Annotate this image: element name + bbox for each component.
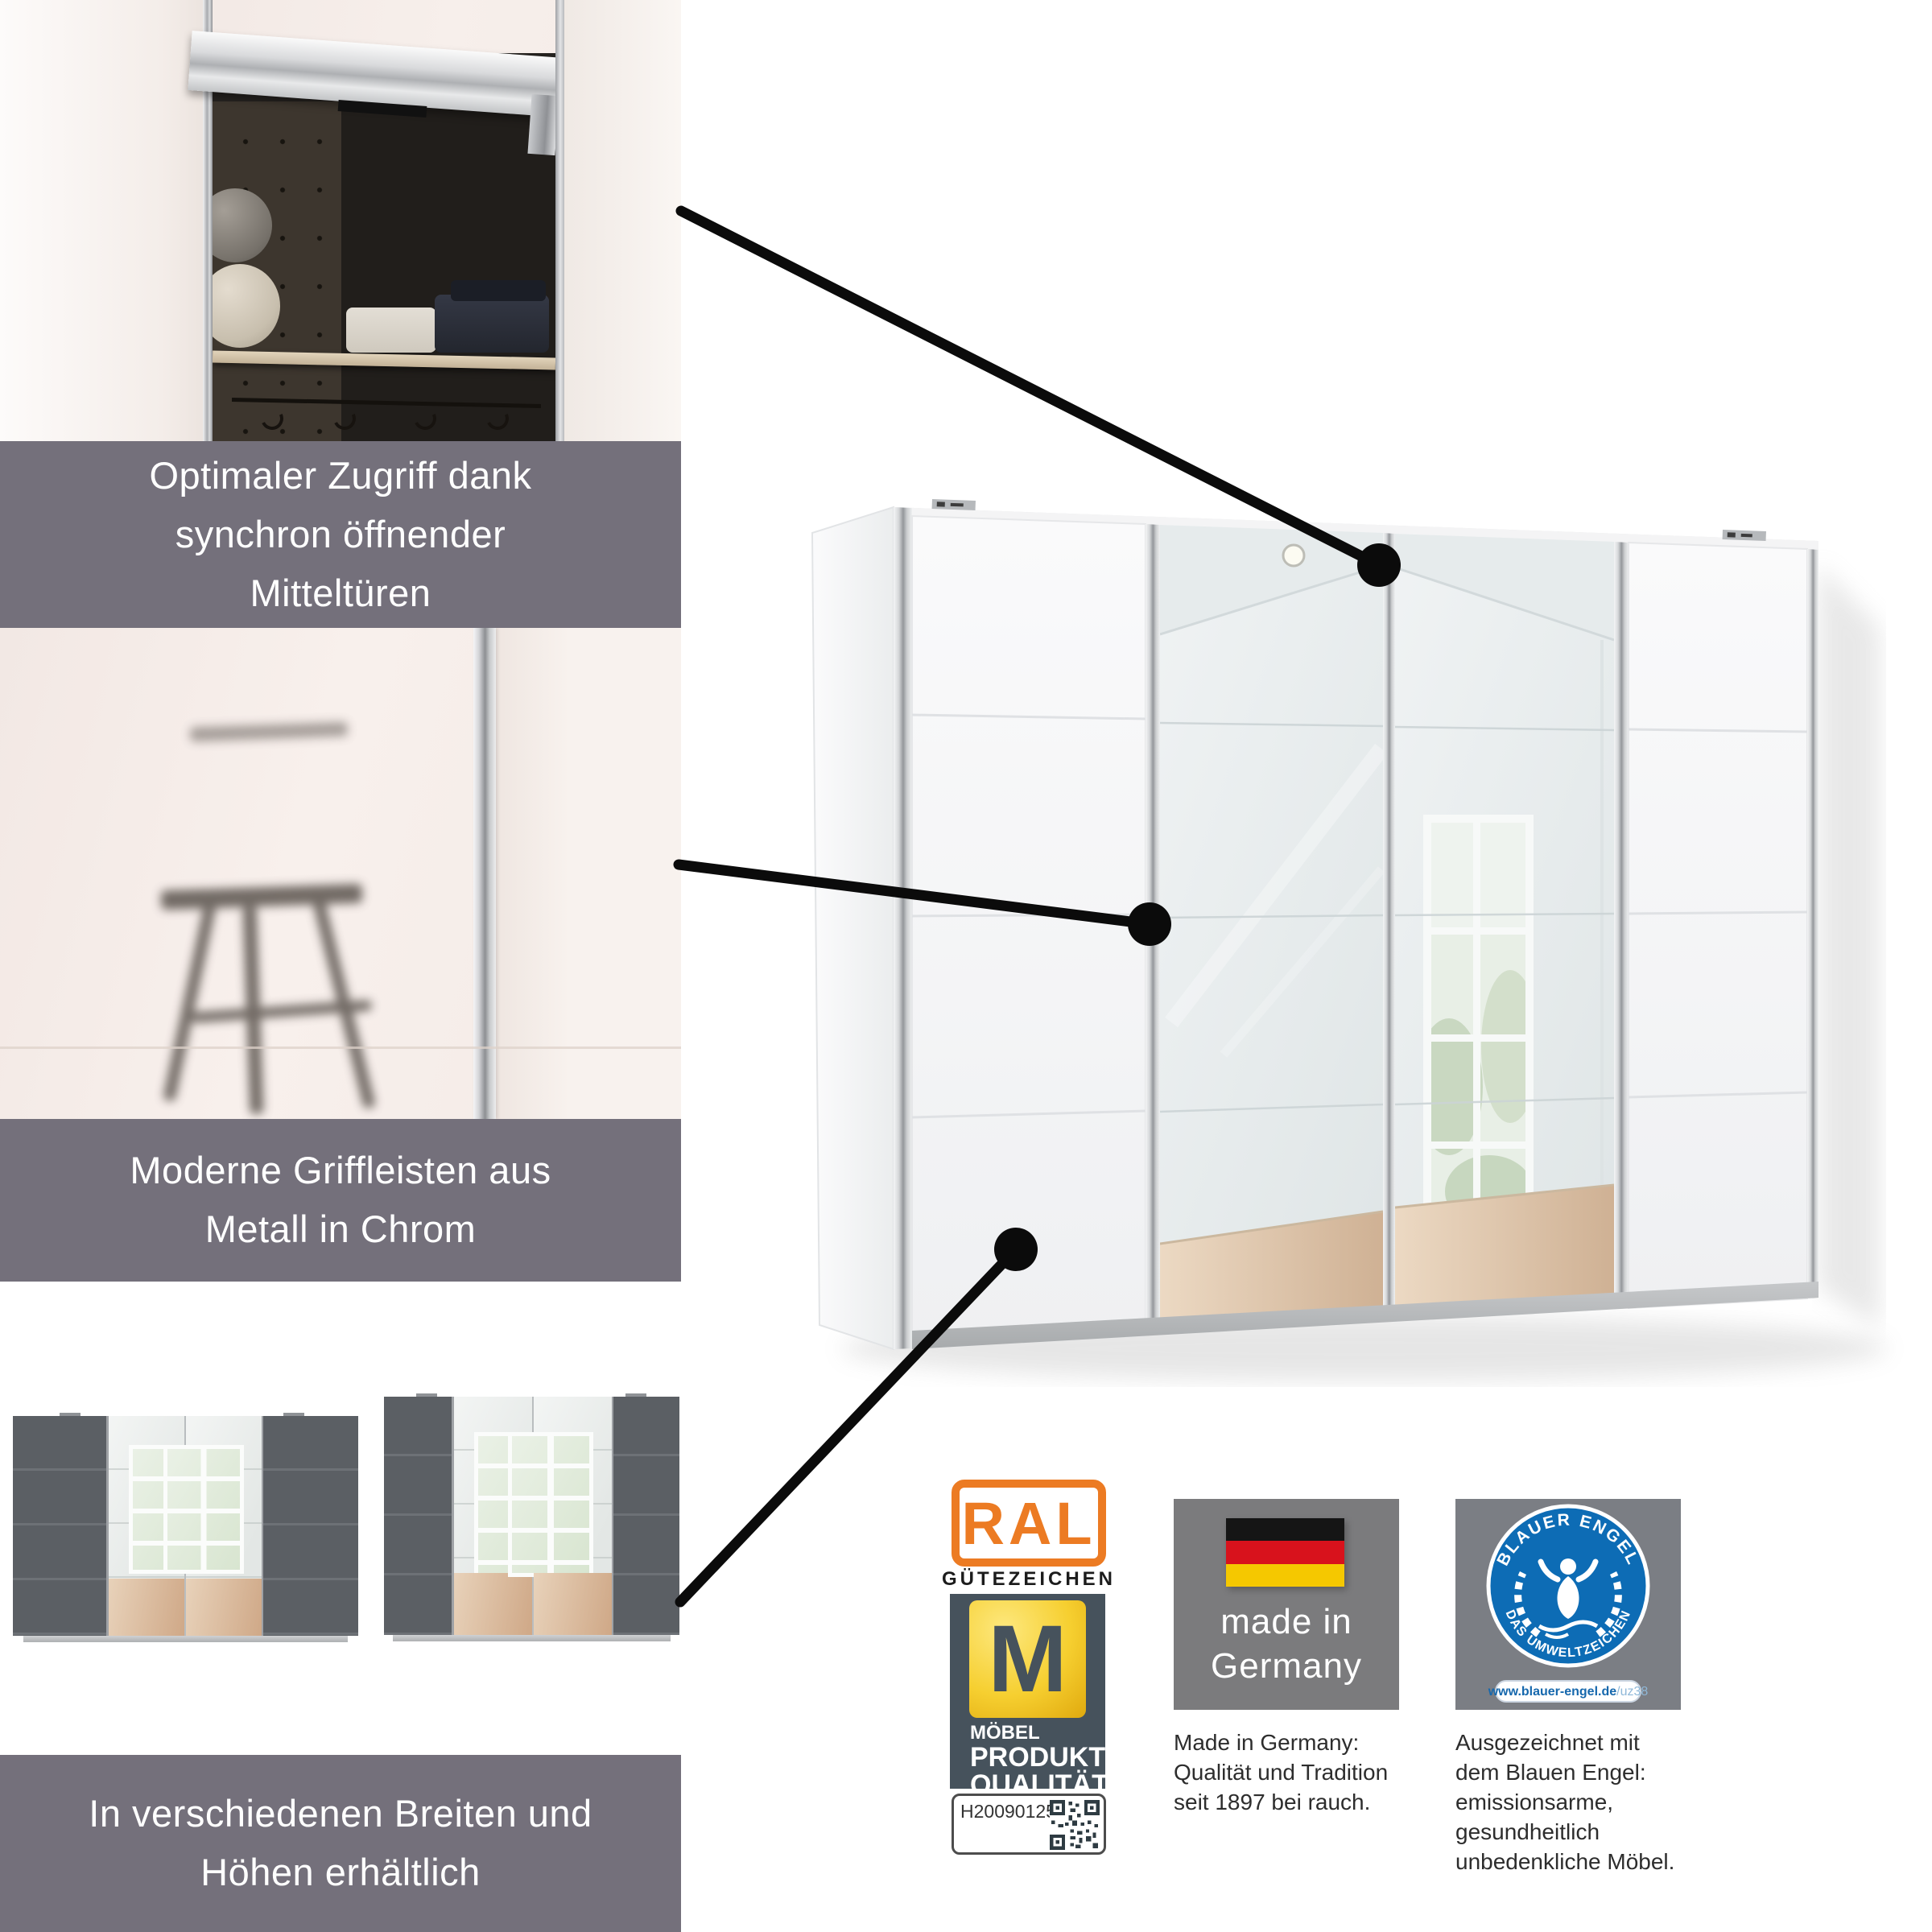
caption-line: dem Blauen Engel: bbox=[1455, 1757, 1713, 1787]
made-in-label: made in bbox=[1174, 1602, 1399, 1642]
m-gold-icon: M bbox=[969, 1600, 1086, 1718]
mirror-divider-strip bbox=[1383, 533, 1395, 1322]
callout-line-1 bbox=[681, 211, 1379, 565]
m-letter: M bbox=[988, 1604, 1067, 1714]
callout-dot-1 bbox=[1357, 543, 1401, 587]
caption-line: emissionsarme, bbox=[1455, 1787, 1713, 1817]
blauer-engel-badge: BLAUER ENGEL DAS UMWELTZEICHEN www.blaue… bbox=[1455, 1499, 1681, 1710]
callout-dot-2 bbox=[1128, 902, 1171, 946]
white-door-right bbox=[1629, 543, 1807, 1308]
made-in-germany-badge: made in Germany bbox=[1174, 1499, 1399, 1710]
moebel-label: MÖBEL bbox=[970, 1723, 1108, 1744]
caption-line: Qualität und Tradition bbox=[1174, 1757, 1415, 1787]
engel-url-text: www.blauer-engel.de/uz38 bbox=[1488, 1685, 1649, 1699]
engel-url-suffix: /uz38 bbox=[1616, 1685, 1648, 1699]
blauer-engel-caption: Ausgezeichnet mit dem Blauen Engel: emis… bbox=[1455, 1728, 1713, 1876]
wall-shadow bbox=[1818, 563, 1880, 1328]
callout-dot-3 bbox=[994, 1228, 1038, 1271]
caption-line: seit 1897 bei rauch. bbox=[1174, 1787, 1415, 1817]
certificate-serial-box: H20090125 bbox=[952, 1794, 1106, 1855]
chrome-handle-strip bbox=[1614, 542, 1629, 1309]
engel-url-main: www.blauer-engel.de bbox=[1488, 1685, 1617, 1699]
mirror-door-left bbox=[1160, 525, 1383, 1335]
produkt-label: PRODUKT bbox=[970, 1744, 1108, 1771]
germany-label: Germany bbox=[1174, 1646, 1399, 1686]
blauer-engel-emblem: BLAUER ENGEL DAS UMWELTZEICHEN www.blaue… bbox=[1455, 1499, 1681, 1710]
qr-code-icon bbox=[1050, 1800, 1100, 1850]
serial-number: H20090125 bbox=[960, 1801, 1056, 1823]
ral-subtitle: GÜTEZEICHEN bbox=[942, 1568, 1113, 1591]
ral-logo: RAL bbox=[952, 1480, 1106, 1567]
caption-line: gesundheitlich bbox=[1455, 1817, 1713, 1847]
product-feature-image: Optimaler Zugriff dank synchron öffnende… bbox=[0, 0, 1932, 1932]
german-flag-icon bbox=[1226, 1518, 1344, 1587]
made-in-germany-caption: Made in Germany: Qualität und Tradition … bbox=[1174, 1728, 1415, 1817]
moebel-qualitaet-badge: M MÖBEL PRODUKT QUALITÄT bbox=[950, 1594, 1105, 1789]
wardrobe-side-panel bbox=[812, 507, 894, 1349]
chrome-strip bbox=[1807, 549, 1818, 1298]
caption-line: Made in Germany: bbox=[1174, 1728, 1415, 1757]
caption-line: Ausgezeichnet mit bbox=[1455, 1728, 1713, 1757]
chrome-strip bbox=[894, 507, 912, 1349]
caption-line: unbedenkliche Möbel. bbox=[1455, 1847, 1713, 1876]
white-door-left bbox=[912, 516, 1146, 1348]
ral-logo-text: RAL bbox=[961, 1489, 1096, 1558]
